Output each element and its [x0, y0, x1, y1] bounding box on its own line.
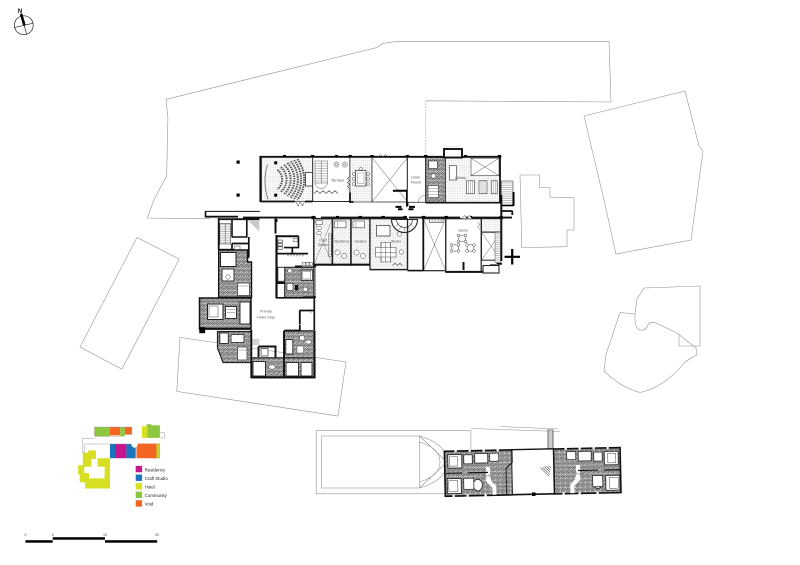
svg-text:Hotel Stay: Hotel Stay — [257, 314, 275, 319]
svg-text:Hotel: Hotel — [145, 485, 155, 490]
svg-text:Room: Room — [411, 180, 421, 184]
svg-text:Room: Room — [483, 473, 492, 477]
svg-text:Void: Void — [145, 502, 154, 507]
svg-text:Craft: Craft — [319, 239, 327, 243]
svg-text:Library: Library — [455, 176, 466, 180]
svg-text:10: 10 — [103, 533, 107, 537]
svg-text:0: 0 — [25, 533, 27, 537]
svg-text:N: N — [18, 8, 23, 15]
svg-text:Linen: Linen — [411, 176, 420, 180]
svg-text:Room: Room — [575, 471, 584, 475]
svg-text:F: F — [310, 311, 312, 315]
svg-text:5: 5 — [52, 533, 54, 537]
svg-text:Craft Studio: Craft Studio — [145, 476, 169, 481]
svg-text:Studio: Studio — [318, 243, 328, 247]
svg-text:Gardens: Gardens — [354, 240, 367, 244]
svg-text:Terrace: Terrace — [331, 178, 345, 183]
svg-text:20: 20 — [155, 533, 159, 537]
svg-text:Residency: Residency — [145, 467, 166, 472]
svg-text:Residency: Residency — [334, 240, 349, 244]
svg-text:Community: Community — [145, 493, 168, 498]
svg-text:Sauna: Sauna — [458, 229, 467, 233]
svg-text:Studio: Studio — [391, 240, 401, 244]
svg-text:Private: Private — [260, 309, 272, 314]
